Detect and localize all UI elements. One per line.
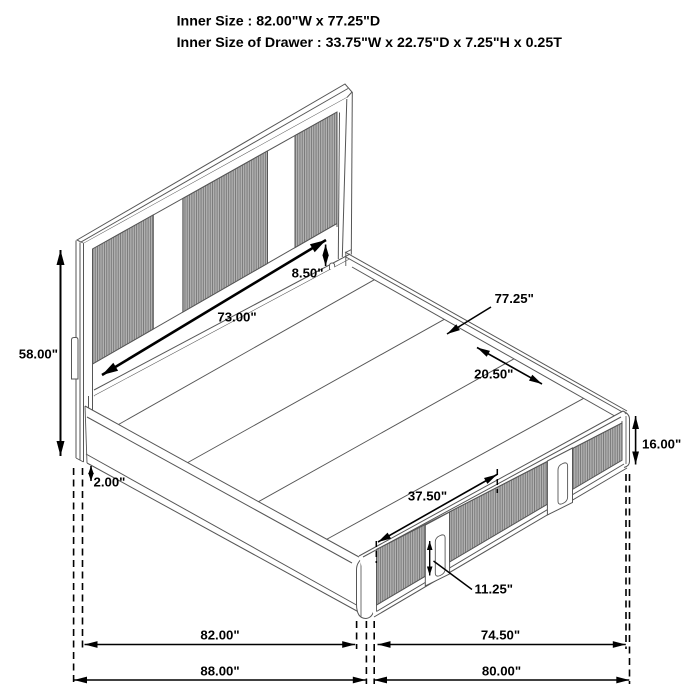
svg-text:77.25": 77.25" <box>495 291 534 306</box>
svg-text:82.00": 82.00" <box>200 628 239 643</box>
svg-text:11.25": 11.25" <box>475 582 514 597</box>
svg-text:8.50": 8.50" <box>292 266 324 281</box>
svg-text:88.00": 88.00" <box>200 664 239 679</box>
svg-text:58.00": 58.00" <box>19 346 58 361</box>
svg-text:16.00": 16.00" <box>642 437 681 452</box>
svg-text:Inner Size of Drawer : 33.75"W: Inner Size of Drawer : 33.75"W x 22.75"D… <box>177 35 563 51</box>
svg-text:74.50": 74.50" <box>481 628 520 643</box>
svg-text:37.50": 37.50" <box>408 489 447 504</box>
svg-text:2.00": 2.00" <box>94 475 126 490</box>
svg-text:80.00": 80.00" <box>482 664 521 679</box>
svg-text:73.00": 73.00" <box>217 310 256 325</box>
svg-text:20.50": 20.50" <box>474 367 513 382</box>
svg-text:Inner Size : 82.00"W x 77.25"D: Inner Size : 82.00"W x 77.25"D <box>177 13 381 29</box>
